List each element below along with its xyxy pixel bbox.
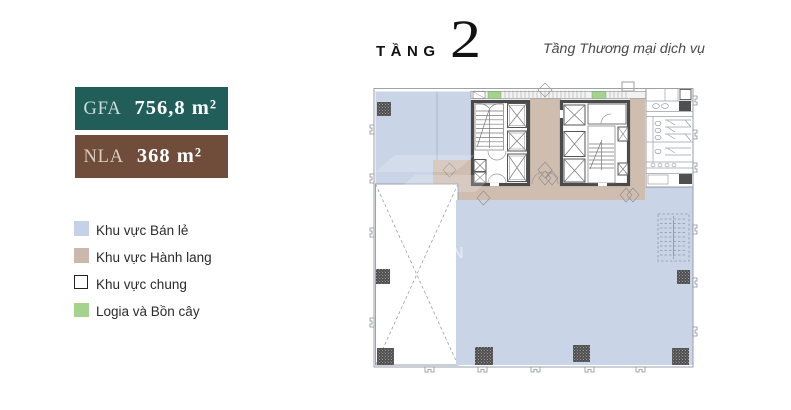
- svg-text:N: N: [452, 245, 464, 262]
